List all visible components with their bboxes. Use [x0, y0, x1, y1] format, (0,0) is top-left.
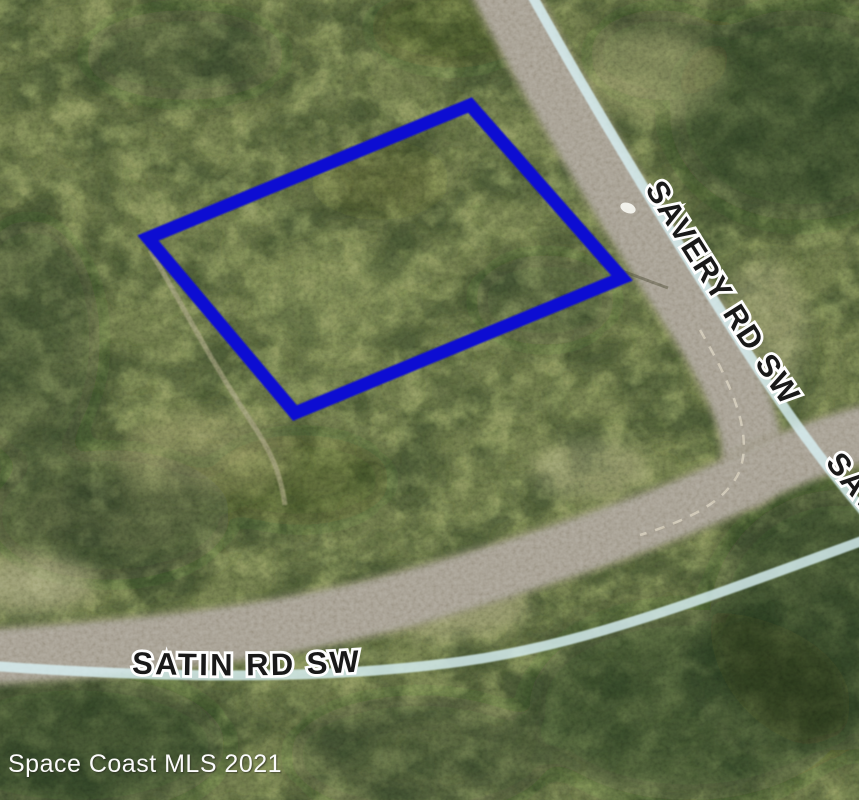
aerial-photo: SAVERY RD SW SAVERY RD SW SATIN RD SW Sp… [0, 0, 859, 800]
watermark-label: Space Coast MLS 2021 [8, 750, 282, 778]
road-label-satin: SATIN RD SW [132, 644, 363, 683]
aerial-map: SAVERY RD SW SAVERY RD SW SATIN RD SW Sp… [0, 0, 859, 800]
road-label-satin-text: SATIN RD SW [132, 644, 363, 683]
